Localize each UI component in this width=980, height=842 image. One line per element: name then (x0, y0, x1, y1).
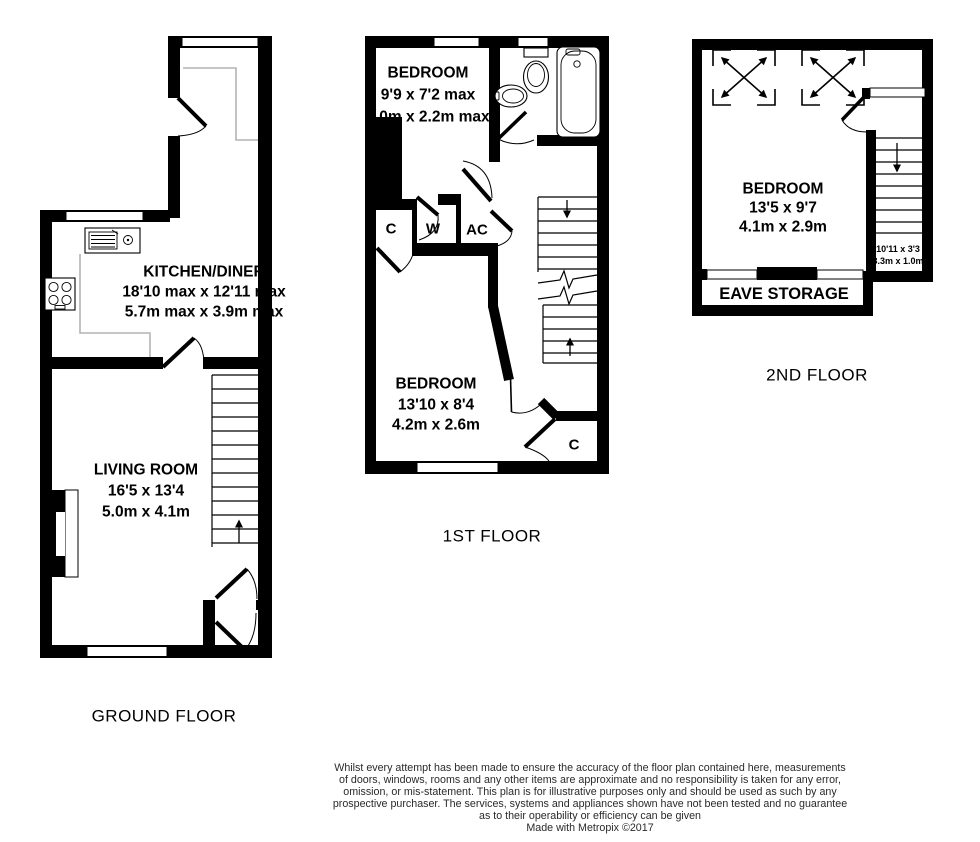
kitchen-sink (85, 228, 140, 253)
floorplan-drawing: KITCHEN/DINER 18'10 max x 12'11 max 5.7m… (0, 0, 980, 770)
staircase-up (212, 375, 258, 547)
window (66, 212, 143, 221)
closet-label-w: W (426, 221, 441, 238)
stair-area-size-imperial: 10'11 x 3'3 (876, 244, 920, 254)
disclaimer-line: Whilst every attempt has been made to en… (240, 762, 940, 774)
room-size-imperial-living-room: 16'5 x 13'4 (108, 483, 185, 500)
room-size-imperial-bedroom-front: 9'9 x 7'2 max (381, 87, 476, 104)
window (182, 38, 258, 47)
room-size-metric-living-room: 5.0m x 4.1m (102, 504, 190, 521)
disclaimer-line: as to their operability or efficiency ca… (240, 810, 940, 822)
second-floor-labels: BEDROOM 13'5 x 9'7 4.1m x 2.9m 10'11 x 3… (719, 181, 923, 385)
chimney-breast (376, 117, 402, 210)
second-floor-plan: BEDROOM 13'5 x 9'7 4.1m x 2.9m 10'11 x 3… (692, 39, 933, 385)
stair-area-size-metric: 3.3m x 1.0m (872, 256, 923, 266)
room-label-bedroom-top: BEDROOM (743, 181, 824, 198)
room-label-bedroom-back: BEDROOM (396, 376, 477, 393)
sloped-ceiling-icon (802, 50, 864, 105)
floor-label-first: 1ST FLOOR (443, 527, 542, 546)
toilet (524, 48, 549, 93)
ground-floor-windows (66, 38, 258, 657)
eave-opening (817, 270, 863, 279)
room-size-metric-bedroom-top: 4.1m x 2.9m (739, 219, 827, 236)
hob (45, 278, 75, 310)
disclaimer-line: omission, or mis-statement. This plan is… (240, 786, 940, 798)
window (518, 38, 548, 47)
room-size-imperial-kitchen: 18'10 max x 12'11 max (122, 284, 286, 301)
closet-label-c-right: C (569, 437, 580, 454)
stair-break-line (538, 287, 597, 304)
floor-label-ground: GROUND FLOOR (92, 707, 237, 726)
room-size-metric-bedroom-back: 4.2m x 2.6m (392, 417, 480, 434)
room-label-kitchen: KITCHEN/DINER (143, 264, 264, 281)
eave-opening (707, 270, 757, 279)
restricted-height-symbols (713, 50, 864, 105)
disclaimer: Whilst every attempt has been made to en… (240, 762, 940, 835)
disclaimer-line: prospective purchaser. The services, sys… (240, 798, 940, 810)
window (434, 38, 479, 47)
bathtub (557, 47, 600, 137)
room-size-imperial-bedroom-top: 13'5 x 9'7 (749, 200, 817, 217)
staircase-down (876, 138, 922, 233)
disclaimer-line: of doors, windows, rooms and any other i… (240, 774, 940, 786)
ground-floor-plan: KITCHEN/DINER 18'10 max x 12'11 max 5.7m… (40, 36, 286, 726)
room-size-metric-kitchen: 5.7m max x 3.9m max (125, 304, 284, 321)
window (417, 463, 498, 473)
first-floor-plan: BEDROOM 9'9 x 7'2 max 3.0m x 2.2m max C … (365, 36, 609, 546)
disclaimer-credit: Made with Metropix ©2017 (240, 822, 940, 834)
room-label-living-room: LIVING ROOM (94, 462, 198, 479)
closet-label-ac: AC (466, 222, 488, 239)
room-label-eave-storage: EAVE STORAGE (719, 285, 849, 303)
room-size-imperial-bedroom-back: 13'10 x 8'4 (398, 397, 475, 414)
floorplan-page: KITCHEN/DINER 18'10 max x 12'11 max 5.7m… (0, 0, 980, 842)
stair-break-line (538, 271, 597, 288)
window (87, 647, 167, 657)
staircase-mid (538, 197, 597, 363)
hall-inner-door (216, 569, 247, 598)
sloped-ceiling-icon (713, 50, 775, 105)
room-label-bedroom-front: BEDROOM (388, 65, 469, 82)
floor-label-second: 2ND FLOOR (766, 366, 868, 385)
stair-opening (870, 88, 925, 97)
room-size-metric-bedroom-front: 3.0m x 2.2m max (366, 109, 490, 126)
closet-label-c-left: C (386, 221, 397, 238)
